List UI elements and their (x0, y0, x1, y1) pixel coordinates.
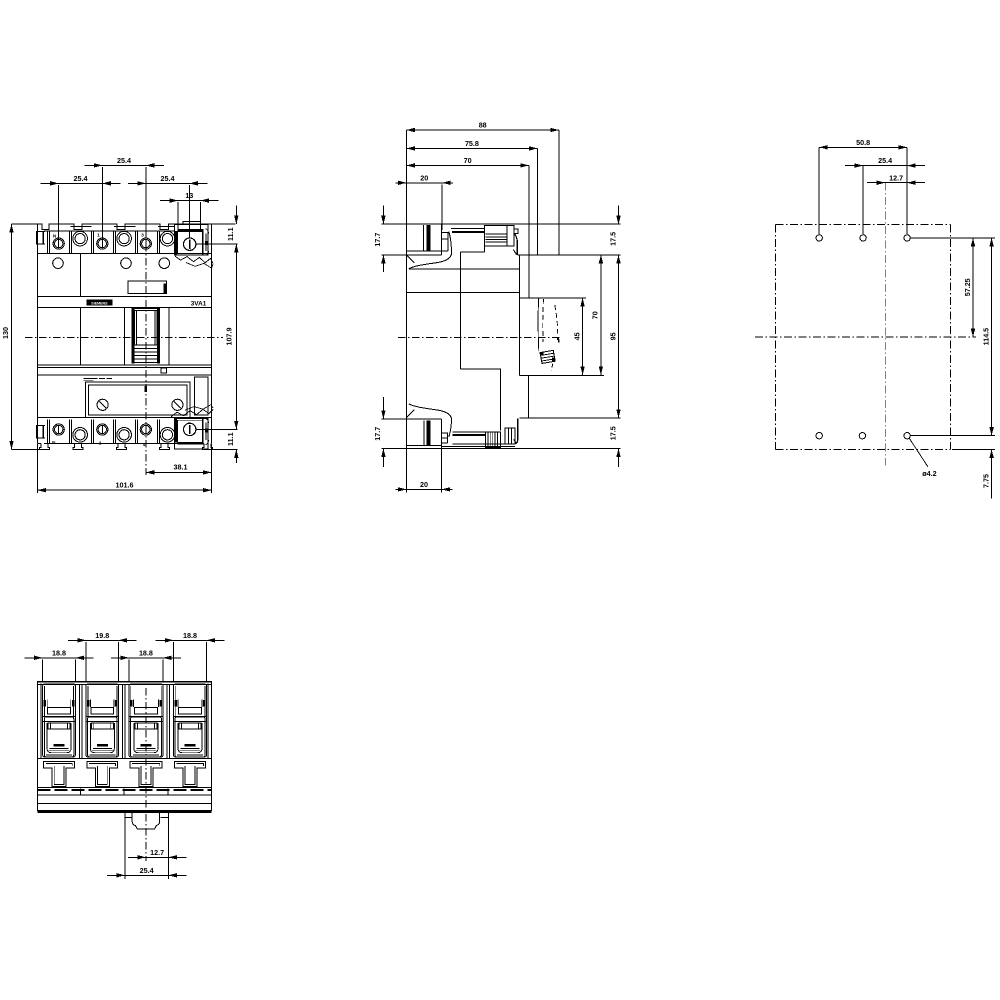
svg-text:19.8: 19.8 (95, 631, 109, 640)
svg-text:11.1: 11.1 (226, 432, 235, 446)
svg-text:107.9: 107.9 (224, 328, 233, 346)
svg-text:130: 130 (1, 327, 10, 339)
svg-text:45: 45 (572, 332, 581, 340)
svg-text:114.5: 114.5 (981, 328, 990, 346)
svg-text:88: 88 (479, 121, 487, 130)
svg-text:20: 20 (420, 173, 428, 182)
svg-text:70: 70 (591, 311, 600, 319)
svg-text:25.4: 25.4 (878, 156, 892, 165)
svg-text:25.4: 25.4 (117, 156, 131, 165)
svg-text:95: 95 (608, 332, 617, 340)
svg-text:38.1: 38.1 (174, 463, 188, 472)
svg-text:ø4.2: ø4.2 (922, 469, 936, 478)
svg-text:70: 70 (464, 156, 472, 165)
svg-text:25.4: 25.4 (140, 866, 154, 875)
svg-text:12.7: 12.7 (150, 848, 164, 857)
svg-text:7.75: 7.75 (981, 474, 990, 488)
svg-text:101.6: 101.6 (116, 480, 134, 489)
svg-text:3: 3 (141, 233, 144, 238)
svg-text:17.5: 17.5 (608, 232, 617, 246)
svg-text:18.8: 18.8 (183, 631, 197, 640)
svg-text:17.5: 17.5 (608, 426, 617, 440)
svg-text:12.7: 12.7 (889, 173, 903, 182)
svg-text:57.25: 57.25 (963, 278, 972, 296)
svg-text:18.8: 18.8 (52, 648, 66, 657)
svg-text:1: 1 (97, 233, 100, 238)
svg-text:20: 20 (420, 480, 428, 489)
svg-text:3VA1: 3VA1 (191, 300, 207, 307)
svg-text:17.7: 17.7 (373, 233, 382, 247)
svg-text:75.8: 75.8 (465, 139, 479, 148)
svg-text:SIEMENS: SIEMENS (91, 301, 108, 305)
svg-text:17.7: 17.7 (373, 427, 382, 441)
svg-text:25.4: 25.4 (161, 174, 175, 183)
svg-text:18.8: 18.8 (139, 648, 153, 657)
svg-text:11.1: 11.1 (226, 227, 235, 241)
svg-text:50.8: 50.8 (856, 138, 870, 147)
svg-text:4: 4 (143, 442, 146, 447)
svg-text:25.4: 25.4 (74, 174, 88, 183)
